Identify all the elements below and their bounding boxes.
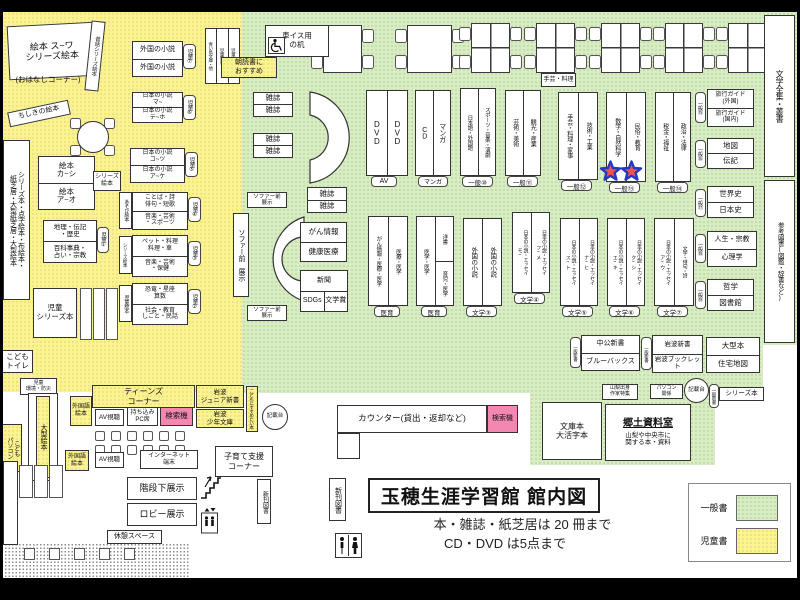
shelf-column: 観光・産業 <box>523 91 541 175</box>
tag-general-14: 一般⑭ <box>657 182 688 193</box>
study-table <box>728 23 765 71</box>
av-booth: AV視聴 <box>95 452 124 468</box>
tag-jido-5: 児童⑤ <box>185 152 198 177</box>
shelf-history: 世界史日本史 <box>707 186 754 218</box>
shelf-column: 税金・福祉 <box>656 93 673 181</box>
foreign-picturebook-text: 絵本 <box>71 461 83 468</box>
shelf-column: 芸術・美術 <box>506 91 523 175</box>
chair <box>395 55 407 69</box>
foreign-picturebook: 外国語絵本 <box>65 450 89 471</box>
tag-general-14-text: 一般⑭ <box>663 183 683 193</box>
shelf-ogata-jutaku-text: 大型本 <box>707 338 759 355</box>
shelf-dvd: DVDDVD <box>366 90 408 176</box>
morning-reading-reco-text: 朝読書に <box>235 59 263 67</box>
vertical-text: シリーズ絵本 <box>123 243 128 267</box>
sofa-front-display-text: ソファー前 展示 <box>237 229 245 281</box>
chair <box>459 27 471 41</box>
cancer-info-shelf-text: がん情報 <box>301 223 346 242</box>
round-table <box>70 114 114 158</box>
shelf-iwanami-shinsho-text: 岩波新書 <box>653 336 702 354</box>
shelf-tax-politics: 税金・福祉政治・法律 <box>655 92 691 182</box>
shelf-jnovels-kids-ko-text: 日本の小説 ア~ケ <box>131 165 184 182</box>
childcare-support-corner-text: コーナー <box>228 462 260 471</box>
chair <box>716 55 728 69</box>
shelf-dino-society-text: 恐竜・星座 算数 <box>133 284 187 304</box>
wall-reference-books-text: 参考図書(図鑑・辞書など) <box>776 222 783 301</box>
shelf-column: 日本の小説・エッセイア~ウ <box>655 219 674 305</box>
page-title-box: 玉穂生涯学習館 館内図 <box>368 478 600 513</box>
new-books-text: 新刊図書 <box>261 491 268 513</box>
search-terminal: 検索機 <box>160 407 193 426</box>
shelf-medical-2-text: 医学・医学 <box>423 249 429 274</box>
shelf-science-education-text: 民俗・教育 <box>632 123 639 151</box>
shelf-foreign-novels-text: 外国の小説 <box>469 247 476 277</box>
chair <box>510 27 522 41</box>
shelf-column: 洋書育児・医学 <box>435 217 454 305</box>
chair <box>716 27 728 41</box>
wall-literature-series-text: 文学全集・叢書 <box>775 70 784 123</box>
counter: カウンター(貸出・返却など) <box>337 405 487 433</box>
shelf-jnovels-kids-ma: 日本の小説 マ~日本の小説 テ~ホ <box>132 92 183 123</box>
shelf-strip <box>34 465 48 498</box>
tag-general-shinsho-text: 一般新書 <box>573 345 579 361</box>
tag-general-18: 一般⑱ <box>695 234 706 263</box>
shelf-cd-manga: CDマンガ <box>415 90 451 176</box>
table-top <box>728 23 767 73</box>
shelf-medical-1-text: 医療・医学 <box>395 249 401 274</box>
magazine-shelf: 雑誌雑誌 <box>253 92 293 117</box>
magazine-shelf-text: 雑誌 <box>254 134 292 145</box>
floor-map: 玉穂生涯学習館 館内図 本・雑誌・紙芝居は 20 冊まで CD・DVD は5点ま… <box>0 0 800 600</box>
shelf-column: DVD <box>367 91 387 175</box>
children-picturebook-strip-text: 児童絵本 <box>123 295 129 313</box>
tag-jido-5-text: 児童⑤ <box>188 157 196 173</box>
chair <box>362 29 374 43</box>
shelf-dvd-text: DVD <box>372 120 381 146</box>
shelf-jnovels-su-text: ス~ト <box>564 240 570 285</box>
picturebook-ka-shi: 絵本 カ~シ絵本 ア~オ <box>38 156 95 210</box>
tag-literature-5-text: 文学⑤ <box>568 307 587 317</box>
shelf-column: 日本の小説・エッセイモ~ <box>513 213 531 292</box>
wheelchair-icon <box>268 37 285 54</box>
magazine-shelf-text: 雑誌 <box>308 200 346 213</box>
shelf-map-biography: 地図伝記 <box>707 138 754 169</box>
sofa-front-display: ソファー前展示 <box>247 305 287 321</box>
under-stairs-display-text: 階段下展示 <box>139 483 184 493</box>
search-terminal-text: 検索機 <box>165 412 188 421</box>
stool <box>95 431 105 441</box>
shelf-column: 日本語・外国語 <box>461 89 478 175</box>
shelf-ogata-jutaku-text: 住宅地図 <box>707 355 759 373</box>
childcare-support-corner: 子育て支援コーナー <box>215 446 273 477</box>
newspaper-shelf-text: 文学賞 <box>324 292 348 312</box>
shelf-jnovels-a: 日本の小説・エッセイア~ウ文学・俳句・詩 <box>654 218 694 306</box>
shelf-geo-encyclopedia-text: 百科事典・ 占い・宗教 <box>44 241 96 262</box>
table-top <box>665 23 703 73</box>
byo-pc-seat-text: PC席 <box>135 417 149 424</box>
byo-pc-seat-text: 持ち込み <box>130 410 154 417</box>
shelf-life-psychology-text: 心理学 <box>708 249 756 267</box>
series-books-text: シリーズ本 <box>725 390 757 397</box>
wheelchair-desk-text: の机 <box>290 41 305 50</box>
shelf-medical-2-text: 洋書 <box>441 234 447 244</box>
foreign-picturebook-text: 外国語 <box>68 454 86 461</box>
stool <box>175 431 185 441</box>
table-top <box>471 23 510 73</box>
children-picturebook-strip: 児童絵本 <box>119 285 132 322</box>
tag-medical: 医育 <box>374 306 400 317</box>
tag-general-18-text: 一般⑱ <box>697 242 704 256</box>
chair <box>703 55 715 69</box>
picturebook-ka-shi-text: 絵本 ア~オ <box>39 183 94 210</box>
lobby-display-text: ロビー展示 <box>139 509 184 519</box>
shelf-column: 日本の小説・エッセイエ~キ <box>608 219 626 305</box>
shelf-medical-1: がん情報・医療・医学医療・医学 <box>368 216 408 306</box>
craft-label: 手芸・料理 <box>541 73 576 87</box>
legend-children-swatch <box>736 528 778 554</box>
shelf-art-tourism: 芸術・美術観光・産業 <box>505 90 541 176</box>
shelf-language-sports-text: スポーツ・音楽・演劇 <box>484 107 490 157</box>
tag-literature-6-text: 文学⑥ <box>615 307 634 317</box>
shelf-column: がん情報・医療・医学 <box>369 217 388 305</box>
shelf-strip <box>80 288 92 340</box>
shelf-philosophy-text: 図書館 <box>708 295 753 311</box>
cancer-info-shelf-text: 健康医療 <box>301 242 346 262</box>
shelf-foreign-novels-kids: 外国の小説外国の小説 <box>132 41 183 77</box>
children-series-books-text: シリーズ本 <box>36 313 73 322</box>
sofa-front-display-text: 展示 <box>261 313 272 319</box>
new-books-text: 新刊図書 <box>333 487 341 513</box>
chair <box>395 29 407 43</box>
tag-general-17-text: 一般⑰ <box>697 196 704 210</box>
loan-limit-note-1: 本・雑誌・紙芝居は 20 冊まで <box>400 514 645 532</box>
shelf-jnovels-e: 日本の小説・エッセイエ~キ日本の小説・エッセイク~シ <box>607 218 645 306</box>
shelf-philosophy: 哲学図書館 <box>707 279 754 311</box>
shelf-words-music-text: 音楽・芸術 ・スポーツ <box>133 211 187 230</box>
iwanami-shonen-text: 岩波 <box>214 411 227 418</box>
stool <box>127 445 137 455</box>
sofa <box>306 90 360 185</box>
shelf-cd-manga-text: マンガ <box>438 123 446 143</box>
play-picturebook: あそび絵本 <box>119 192 132 229</box>
lobby-display: ロビー展示 <box>127 503 197 526</box>
tag-general-shinsho: 一般新書 <box>641 337 652 370</box>
pc-related-text: 関係 <box>661 392 671 398</box>
shelf-column: 日本の小説・エッセイナ~ヒ <box>579 219 598 305</box>
shelf-craft-tech-text: 手芸・料理・家事 <box>565 114 572 158</box>
series-picturebook: シリーズ絵本 <box>93 171 121 191</box>
local-history-room-text: 郷土資料室 <box>623 418 673 430</box>
chair <box>575 55 587 69</box>
chair <box>575 27 587 41</box>
chair <box>524 55 536 69</box>
series-picturebook-text: シリーズ <box>95 174 119 181</box>
shelf-geo-encyclopedia-text: 地理・伝記 ・歴史 <box>44 221 96 241</box>
tag-literature-6: 文学⑥ <box>609 306 640 317</box>
tag-general-16-text: 一般⑯ <box>697 147 704 161</box>
tag-general-12-text: 一般⑫ <box>567 181 587 191</box>
shelf-tax-politics-text: 税金・福祉 <box>661 123 668 151</box>
rest-space-label: 休憩スペース <box>107 530 162 544</box>
tag-literature-4-text: 文学④ <box>520 294 539 304</box>
shelf-jnovels-kids-ko: 日本の小説 コ~ツ日本の小説 ア~ケ <box>130 148 185 183</box>
study-table <box>665 23 701 71</box>
vertical-text: こどもにすすめたい本 <box>249 389 254 429</box>
tag-general-shinsho-text: 一般新書 <box>644 346 650 362</box>
teens-corner-text: コーナー <box>128 397 160 406</box>
cancer-info-shelf: がん情報健康医療 <box>300 222 347 262</box>
sofa-front-display-text: 展示 <box>261 200 272 206</box>
tag-jido-3-text: 児童③ <box>191 246 199 262</box>
shelf-map-biography-text: 地図 <box>708 139 753 153</box>
rest-space-label-text: 休憩スペース <box>114 533 155 541</box>
shelf-jnovels-e-text: エ~キ <box>611 240 617 285</box>
shelf-dvd-text: DVD <box>393 120 402 146</box>
grid-row: 新聞 <box>301 271 347 291</box>
tag-general-17: 一般⑰ <box>695 189 706 217</box>
shelf-jnovels-su-text: 日本の小説・エッセイ <box>588 240 594 285</box>
rest-seat <box>99 548 110 560</box>
tag-literature-4: 文学④ <box>514 293 545 304</box>
newspaper-shelf-text: SDGs <box>301 292 324 312</box>
stool <box>159 431 169 441</box>
internet-terminal-text: 端末 <box>163 460 175 467</box>
shelf-jnovels-kids-ma-text: 日本の小説 テ~ホ <box>133 107 182 122</box>
tag-jido-4: 児童④ <box>188 197 201 222</box>
shelf-column: 手芸・料理・家事 <box>559 93 578 179</box>
vertical-text: 新刊図書 <box>333 487 341 513</box>
shelf-column: 外国の小説 <box>464 219 482 305</box>
tag-general-11-text: 一般⑪ <box>513 177 533 187</box>
magazine-shelf-text: 雑誌 <box>254 93 292 104</box>
counter-text: カウンター(貸出・返却など) <box>358 414 466 424</box>
shelf-iwanami-shinsho: 岩波新書岩波ブックレット <box>652 335 703 373</box>
loan-limit-note-2: CD・DVD は5点まで <box>400 533 610 551</box>
tag-general-15: 一般⑮ <box>695 92 706 123</box>
shelf-strip <box>49 465 63 498</box>
shelf-column: 日本の小説・エッセイフ~メ <box>531 213 550 292</box>
shelf-strip <box>93 288 105 340</box>
elevator-icon <box>201 507 218 534</box>
children-bunko-shelf-text: 青い鳥文庫・他 <box>209 42 214 70</box>
play-picturebook-text: あそび絵本 <box>123 199 129 222</box>
tag-general-10: 一般⑩ <box>462 176 493 187</box>
tag-manga-text: マンガ <box>424 177 442 186</box>
shelf-tax-politics-text: 政治・法律 <box>678 123 685 151</box>
morning-reading-reco: 朝読書におすすめ <box>221 57 277 78</box>
shelf-column: スポーツ・音楽・演劇 <box>478 89 496 175</box>
newspaper-shelf: 新聞SDGs文学賞 <box>300 270 348 312</box>
internet-terminal-text: インターネット <box>148 453 190 460</box>
legend-children-label: 児童書 <box>696 533 732 547</box>
chair <box>311 55 323 69</box>
av-booth: AV視聴 <box>95 409 124 426</box>
rest-seat <box>49 548 60 560</box>
shelf-philosophy-text: 哲学 <box>708 280 753 295</box>
tag-jido-4-text: 児童④ <box>191 202 199 218</box>
foreign-picturebook-text: 外国語 <box>72 404 90 411</box>
shelf-jnovels-e-text: 日本の小説・エッセイ <box>635 240 641 285</box>
chair <box>703 27 715 41</box>
stool <box>143 431 153 441</box>
tag-jido-2-text: 児童② <box>191 294 199 310</box>
round-table-top <box>77 121 109 153</box>
rest-seat <box>24 548 35 560</box>
restroom-icon <box>335 533 362 558</box>
vertical-text: ソファー前 展示 <box>237 229 245 281</box>
shelf-history-text: 世界史 <box>708 187 753 202</box>
teens-corner-text: ティーンズ <box>124 387 163 396</box>
shelf-chuko-shinsho-text: ブルーバックス <box>582 353 639 371</box>
shelf-medical-2-text: 育児・医学 <box>441 271 447 296</box>
shelf-art-tourism-text: 芸術・美術 <box>511 119 518 147</box>
shelf-column: 日本の小説・エッセイク~シ <box>626 219 645 305</box>
shelf-column: マンガ <box>433 91 451 175</box>
picturebook-ka-shi-text: 絵本 カ~シ <box>39 157 94 183</box>
sofa-front-display: ソファー前 展示 <box>233 213 249 297</box>
sofa-front-display: ソファー前展示 <box>247 192 287 208</box>
series-picturebook-strip-text: シリーズ絵本 <box>123 243 128 267</box>
new-books: 新刊図書 <box>329 478 346 521</box>
shelf-dino-society-text: 社会・教育 しごと・民話 <box>133 304 187 325</box>
shelf-jnovels-mo-text: モ~ <box>516 230 522 275</box>
shelf-column: 文学・俳句・詩 <box>674 219 694 305</box>
table-top <box>601 23 640 73</box>
tag-jido-2: 児童② <box>188 289 201 314</box>
storytime-corner-label-label: (おはなしコーナー) <box>16 74 81 85</box>
vertical-text: 昔話シリーズ絵本 <box>90 36 100 76</box>
shelf-travel-guide-text: 旅行ガイド (外国) <box>708 90 753 108</box>
study-table <box>407 25 450 71</box>
shelf-foreign-novels-kids-text: 外国の小説 <box>133 42 182 59</box>
tag-general-19-text: 一般⑲ <box>697 288 704 302</box>
craft-label-text: 手芸・料理 <box>543 77 573 84</box>
series-picturebook-strip: シリーズ絵本 <box>119 236 132 274</box>
vertical-text: 参考図書(図鑑・辞書など) <box>776 222 783 301</box>
shelf-science-education-text: 数学・自然科学 <box>613 118 620 157</box>
shelf-column: 技術・工業 <box>578 93 598 179</box>
teens-corner: ティーンズコーナー <box>92 385 195 408</box>
rest-seat <box>124 548 135 560</box>
stool <box>127 431 137 441</box>
tag-general-11: 一般⑪ <box>507 176 538 187</box>
chair <box>640 27 652 41</box>
shelf-column: 医療・医学 <box>388 217 408 305</box>
legend-general-swatch <box>736 495 778 521</box>
tag-literature-3: 文学③ <box>466 306 497 317</box>
shelf-foreign-novels: 外国の小説外国の小説 <box>463 218 502 306</box>
kamishibai-label-text: シリーズ本・点字絵本・布絵本・ <box>17 171 25 269</box>
av-booth-text: AV視聴 <box>99 456 120 463</box>
morning-reading-reco-text: おすすめ <box>235 68 263 76</box>
table-top <box>536 23 575 73</box>
newspaper-shelf-text: 新聞 <box>301 271 347 291</box>
foreign-picturebook: 外国語絵本 <box>70 396 92 426</box>
shelf-jnovels-a-text: 文学・俳句・詩 <box>681 246 687 278</box>
under-stairs-display: 階段下展示 <box>127 477 197 500</box>
stool <box>111 431 121 441</box>
bench-row <box>19 465 61 496</box>
local-history-room: 郷土資料室山梨や中央市に関する本・資料 <box>605 404 691 461</box>
counter-side <box>337 433 360 459</box>
bench <box>3 461 18 545</box>
tag-general-16: 一般⑯ <box>695 140 706 168</box>
grid-row: SDGs文学賞 <box>301 291 347 312</box>
shelf-chuko-shinsho-text: 中公新書 <box>582 336 639 353</box>
shelf-geo-encyclopedia: 地理・伝記 ・歴史百科事典・ 占い・宗教 <box>43 220 97 263</box>
shelf-craft-tech: 手芸・料理・家事技術・工業 <box>558 92 598 180</box>
shelf-travel-guide-text: 旅行ガイド (国内) <box>708 108 753 127</box>
chair <box>589 55 601 69</box>
shelf-map-biography-text: 伝記 <box>708 153 753 168</box>
shelf-strips <box>80 288 116 338</box>
stools <box>95 431 191 439</box>
kids-toilet: こどもトイレ <box>2 350 33 373</box>
iwanami-shonen: 岩波少年文庫 <box>196 409 244 428</box>
shelf-craft-tech-text: 技術・工業 <box>584 122 591 150</box>
wall-reference-books: 参考図書(図鑑・辞書など) <box>764 180 795 343</box>
shelf-column: 青い鳥文庫・他 <box>206 29 216 83</box>
shelf-strip <box>19 465 33 498</box>
rest-space <box>4 543 190 577</box>
tag-jido-6: 児童⑥ <box>183 95 196 120</box>
shelf-foreign-novels-text: 外国の小説 <box>488 247 495 277</box>
tag-general-12: 一般⑫ <box>561 180 592 191</box>
chair <box>362 55 374 69</box>
shelf-jnovels-mo: 日本の小説・エッセイモ~日本の小説・エッセイフ~メ <box>512 212 550 293</box>
shelf-column: DVD <box>387 91 408 175</box>
shelf-cd-manga-text: CD <box>420 127 428 140</box>
local-history-room-text: 関する本・資料 <box>625 439 671 446</box>
shelf-medical-1-text: がん情報・医療・医学 <box>375 236 381 286</box>
foreign-picturebook-text: 絵本 <box>75 411 87 418</box>
chair <box>653 55 665 69</box>
kids-toilet-text: トイレ <box>6 362 29 371</box>
table-top <box>407 25 452 73</box>
shelf-column: 医学・医学 <box>417 217 435 305</box>
shelf-strip <box>106 288 118 340</box>
wall-literature-series: 文学全集・叢書 <box>764 15 795 177</box>
shelf-jnovels-a-text: 日本の小説・エッセイ <box>664 240 670 285</box>
tag-literature-7: 文学⑦ <box>657 306 688 317</box>
shelf-column: 外国の小説 <box>482 219 501 305</box>
series-picturebook-text: 絵本 <box>101 181 113 188</box>
childcare-support-corner-text: 子育て支援 <box>224 452 264 461</box>
tag-jido-1-text: 児童① <box>99 232 107 248</box>
folktale-series-text: 昔話シリーズ絵本 <box>90 36 100 76</box>
tag-literature-5: 文学⑤ <box>562 306 593 317</box>
shelf-jnovels-su: 日本の小説・エッセイス~ト日本の小説・エッセイナ~ヒ <box>560 218 598 306</box>
shelf-medical-2: 医学・医学洋書育児・医学 <box>416 216 454 306</box>
iwanami-shonen-text: 少年文庫 <box>207 419 233 426</box>
tag-general-19: 一般⑲ <box>695 281 706 309</box>
chair <box>653 27 665 41</box>
shelf-column: CD <box>416 91 433 175</box>
writing-stand-text: 記載台 <box>688 388 705 394</box>
shelf-foreign-novels-kids-text: 外国の小説 <box>133 59 182 77</box>
tag-jido-1: 児童① <box>97 227 109 253</box>
tag-medical: 医育 <box>421 306 447 317</box>
new-books: 新刊図書 <box>257 479 271 524</box>
shelf-jnovels-mo-text: 日本の小説・エッセイ <box>540 230 546 275</box>
bunko-large-print: 文庫本大活字本 <box>542 402 602 460</box>
bunko-large-print-text: 文庫本 <box>560 422 584 431</box>
tag-general-shinsho: 一般新書 <box>570 337 581 368</box>
iwanami-junior-text: 岩波 <box>214 389 227 396</box>
shelf-subcell: 洋書 <box>436 217 454 261</box>
writing-stand: 記載台 <box>684 378 709 403</box>
tag-av-text: AV <box>380 178 389 185</box>
